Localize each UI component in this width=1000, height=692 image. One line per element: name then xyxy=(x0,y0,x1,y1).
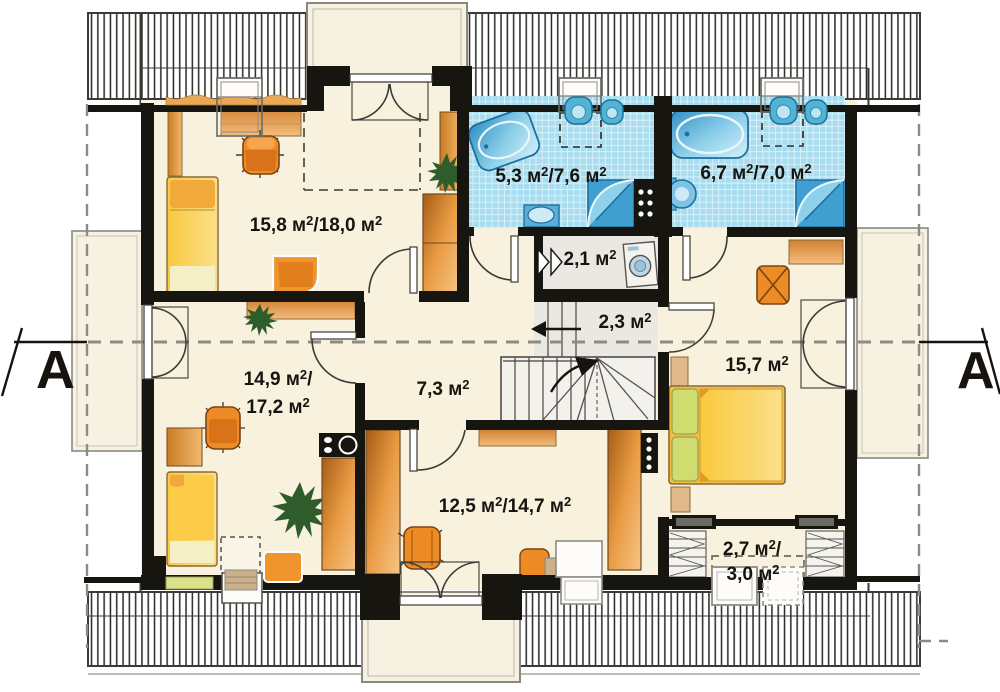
svg-text:15,8 м2/18,0 м2: 15,8 м2/18,0 м2 xyxy=(250,213,382,236)
svg-text:12,5 м2/14,7 м2: 12,5 м2/14,7 м2 xyxy=(439,494,571,517)
svg-text:2,1 м2: 2,1 м2 xyxy=(564,247,617,270)
svg-text:3,0 м2: 3,0 м2 xyxy=(727,562,780,585)
svg-text:17,2 м2: 17,2 м2 xyxy=(246,395,310,418)
svg-text:A: A xyxy=(957,342,995,400)
svg-text:7,3 м2: 7,3 м2 xyxy=(417,377,470,400)
svg-text:5,3 м2/7,6 м2: 5,3 м2/7,6 м2 xyxy=(495,164,606,187)
svg-text:2,3 м2: 2,3 м2 xyxy=(599,310,652,333)
svg-text:15,7 м2: 15,7 м2 xyxy=(725,353,789,376)
svg-text:6,7 м2/7,0 м2: 6,7 м2/7,0 м2 xyxy=(700,161,811,184)
svg-text:A: A xyxy=(36,340,75,400)
